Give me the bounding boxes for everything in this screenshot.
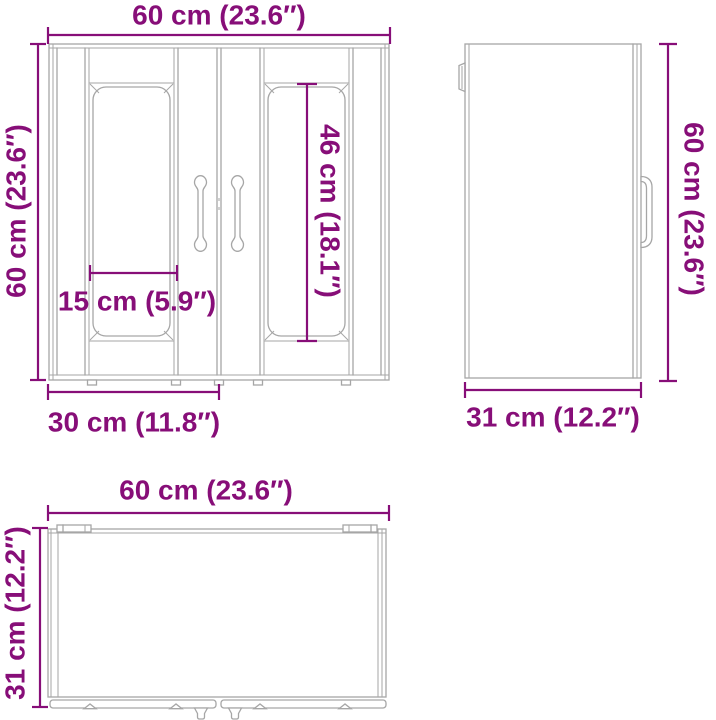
top-outline: [48, 529, 386, 697]
cabinet-dimension-drawing: 60 cm (23.6″) 60 cm (23.6″) 15 cm (5.9″)…: [0, 0, 716, 720]
top-width-label: 60 cm (23.6″): [119, 475, 293, 506]
side-depth-label: 31 cm (12.2″): [466, 402, 640, 433]
side-height-label: 60 cm (23.6″): [679, 122, 710, 296]
side-outline: [465, 44, 641, 378]
front-width-label: 60 cm (23.6″): [132, 0, 306, 31]
dimension-diagram: 60 cm (23.6″) 60 cm (23.6″) 15 cm (5.9″)…: [0, 0, 716, 720]
side-view: [459, 44, 652, 378]
front-panel-height-label: 46 cm (18.1″): [315, 124, 346, 298]
top-left-handle-icon: [195, 708, 208, 719]
front-height-label: 60 cm (23.6″): [1, 124, 32, 298]
top-view: [48, 525, 386, 719]
top-depth-label: 31 cm (12.2″): [0, 526, 31, 700]
side-handle-icon: [641, 177, 652, 248]
front-panel-width-label: 15 cm (5.9″): [58, 286, 216, 317]
front-door-width-label: 30 cm (11.8″): [48, 407, 220, 438]
top-right-handle-icon: [229, 708, 242, 719]
top-door-fronts: [50, 700, 386, 719]
